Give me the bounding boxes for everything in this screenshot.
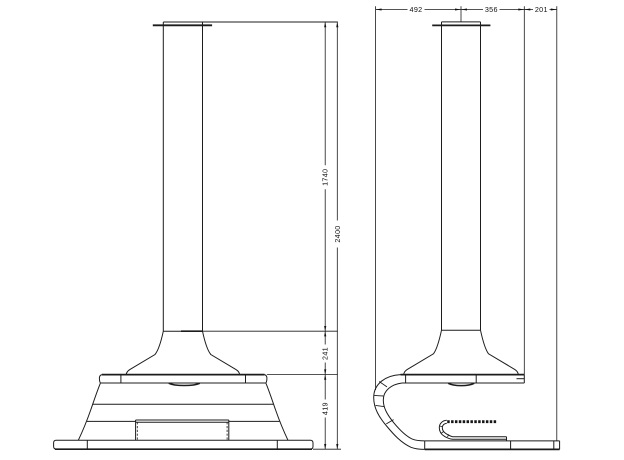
svg-text:201: 201 <box>535 5 548 14</box>
svg-text:356: 356 <box>485 5 498 14</box>
svg-text:2400: 2400 <box>333 225 342 242</box>
svg-text:241: 241 <box>321 347 330 360</box>
svg-text:492: 492 <box>410 5 423 14</box>
svg-text:419: 419 <box>321 402 330 415</box>
svg-text:1740: 1740 <box>321 169 330 186</box>
